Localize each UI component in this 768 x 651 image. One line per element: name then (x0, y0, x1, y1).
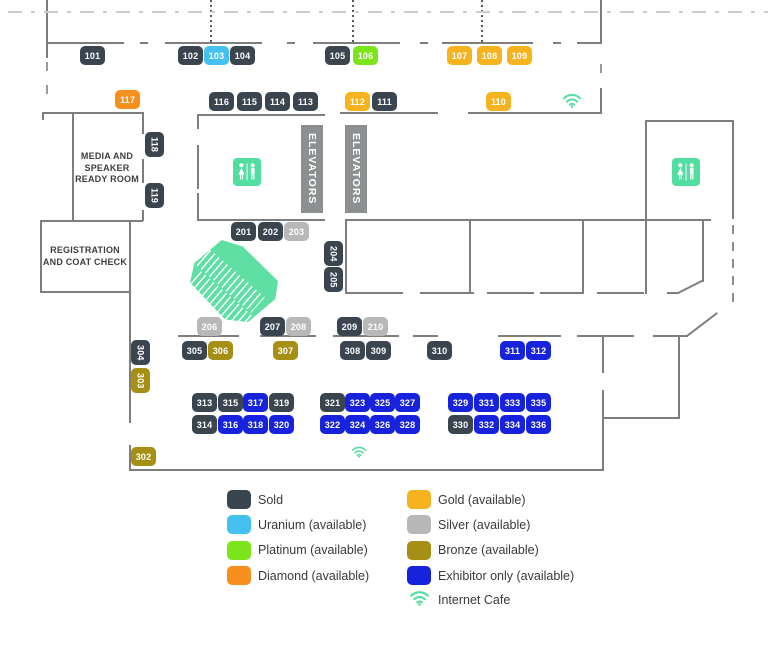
legend-item-uranium: Uranium (available) (227, 515, 366, 534)
wall-segment (197, 114, 325, 116)
wall-segment (602, 390, 604, 471)
wall-segment (481, 0, 483, 43)
booth-110[interactable]: 110 (486, 92, 511, 111)
booth-302[interactable]: 302 (131, 447, 156, 466)
booth-104[interactable]: 104 (230, 46, 255, 65)
booth-205[interactable]: 205 (324, 267, 343, 292)
booth-307[interactable]: 307 (273, 341, 298, 360)
wall-segment (540, 292, 583, 294)
legend-label-bronze: Bronze (available) (438, 543, 539, 557)
wall-segment (600, 88, 602, 114)
legend-swatch-exhibitor (407, 566, 431, 585)
booth-328[interactable]: 328 (395, 415, 420, 434)
wall-segment (197, 193, 199, 220)
legend-item-platinum: Platinum (available) (227, 541, 368, 560)
legend-item-gold: Gold (available) (407, 490, 526, 509)
legend-item-silver: Silver (available) (407, 515, 530, 534)
booth-208[interactable]: 208 (286, 317, 311, 336)
wall-segment (313, 42, 400, 44)
booth-316[interactable]: 316 (218, 415, 243, 434)
booth-308[interactable]: 308 (340, 341, 365, 360)
booth-327[interactable]: 327 (395, 393, 420, 412)
booth-112[interactable]: 112 (345, 92, 370, 111)
wall-segment (413, 335, 438, 337)
wall-segment (597, 292, 644, 294)
booth-319[interactable]: 319 (269, 393, 294, 412)
wall-segment (577, 42, 602, 44)
wall-segment (42, 112, 44, 120)
wall-segment (582, 219, 584, 294)
wall-segment (165, 42, 262, 44)
wall-segment (345, 219, 711, 221)
legend-swatch-platinum (227, 541, 251, 560)
wall-segment (42, 112, 143, 114)
legend-item-exhibitor: Exhibitor only (available) (407, 566, 574, 585)
wifi-icon (407, 589, 431, 611)
wall-segment (8, 11, 768, 13)
booth-313[interactable]: 313 (192, 393, 217, 412)
booth-210[interactable]: 210 (363, 317, 388, 336)
booth-202[interactable]: 202 (258, 222, 283, 241)
wall-segment (577, 335, 634, 337)
wall-segment (653, 335, 688, 337)
wall-segment (702, 219, 704, 282)
booth-321[interactable]: 321 (320, 393, 345, 412)
booth-115[interactable]: 115 (237, 92, 262, 111)
wall-segment (645, 120, 647, 294)
legend-label-silver: Silver (available) (438, 518, 530, 532)
legend-swatch-bronze (407, 541, 431, 560)
wall-segment (142, 210, 144, 221)
booth-117[interactable]: 117 (115, 90, 140, 109)
booth-330[interactable]: 330 (448, 415, 473, 434)
booth-209[interactable]: 209 (337, 317, 362, 336)
legend-item-internet-cafe: Internet Cafe (407, 589, 510, 611)
booth-324[interactable]: 324 (345, 415, 370, 434)
legend-item-diamond: Diamond (available) (227, 566, 369, 585)
booth-207[interactable]: 207 (260, 317, 285, 336)
booth-113[interactable]: 113 (293, 92, 318, 111)
booth-322[interactable]: 322 (320, 415, 345, 434)
wall-segment (142, 112, 144, 134)
wall-segment (498, 335, 561, 337)
wall-segment (420, 42, 428, 44)
booth-314[interactable]: 314 (192, 415, 217, 434)
wifi-icon (351, 445, 367, 463)
wifi-icon (562, 92, 582, 113)
wall-segment (352, 0, 354, 43)
legend-label-gold: Gold (available) (438, 493, 526, 507)
registration-coat-check-label: REGISTRATIONAND COAT CHECK (40, 245, 130, 268)
booth-305[interactable]: 305 (182, 341, 207, 360)
booth-320[interactable]: 320 (269, 415, 294, 434)
wall-segment (678, 335, 680, 419)
media-speaker-ready-room-label: MEDIA ANDSPEAKERREADY ROOM (64, 151, 150, 186)
wall-segment (345, 219, 347, 294)
wall-segment (40, 291, 131, 293)
legend-swatch-silver (407, 515, 431, 534)
wall-segment (46, 0, 48, 58)
wall-segment (600, 0, 602, 43)
booth-206[interactable]: 206 (197, 317, 222, 336)
legend-item-sold: Sold (227, 490, 283, 509)
booth-105[interactable]: 105 (325, 46, 350, 65)
booth-329[interactable]: 329 (448, 393, 473, 412)
booth-317[interactable]: 317 (243, 393, 268, 412)
wall-segment (345, 292, 403, 294)
wall-segment (46, 62, 48, 71)
wall-segment (46, 42, 124, 44)
booth-326[interactable]: 326 (370, 415, 395, 434)
booth-201[interactable]: 201 (231, 222, 256, 241)
wall-segment (732, 120, 734, 219)
legend-swatch-sold (227, 490, 251, 509)
booth-109[interactable]: 109 (507, 46, 532, 65)
wall-segment (340, 112, 438, 114)
wall-segment (678, 280, 703, 294)
booth-114[interactable]: 114 (265, 92, 290, 111)
legend-label-internet-cafe: Internet Cafe (438, 593, 510, 607)
wall-segment (469, 219, 471, 294)
expo-floor-plan: MEDIA ANDSPEAKERREADY ROOM REGISTRATIONA… (0, 0, 768, 651)
legend-swatch-gold (407, 490, 431, 509)
booth-119[interactable]: 119 (145, 183, 164, 208)
booth-303[interactable]: 303 (131, 368, 150, 393)
wall-segment (602, 417, 679, 419)
booth-108[interactable]: 108 (477, 46, 502, 65)
booth-315[interactable]: 315 (218, 393, 243, 412)
booth-111[interactable]: 111 (372, 92, 397, 111)
booth-312[interactable]: 312 (526, 341, 551, 360)
wall-segment (602, 337, 604, 373)
elevator-bank-left: ELEVATORS (301, 125, 323, 213)
booth-106[interactable]: 106 (353, 46, 378, 65)
legend-item-bronze: Bronze (available) (407, 541, 539, 560)
booth-101[interactable]: 101 (80, 46, 105, 65)
restroom-icon (233, 158, 261, 186)
legend-label-diamond: Diamond (available) (258, 569, 369, 583)
wall-segment (197, 219, 325, 221)
wall-segment (645, 120, 733, 122)
wall-segment (487, 292, 534, 294)
booth-325[interactable]: 325 (370, 393, 395, 412)
booth-204[interactable]: 204 (324, 241, 343, 266)
elevator-bank-right: ELEVATORS (345, 125, 367, 213)
booth-304[interactable]: 304 (131, 340, 150, 365)
wall-segment (40, 220, 143, 222)
booth-309[interactable]: 309 (366, 341, 391, 360)
wall-segment (420, 292, 474, 294)
wall-segment (732, 225, 734, 307)
legend-swatch-diamond (227, 566, 251, 585)
wall-segment (287, 42, 295, 44)
stairs (190, 240, 278, 322)
booth-311[interactable]: 311 (500, 341, 525, 360)
booth-333[interactable]: 333 (500, 393, 525, 412)
booth-118[interactable]: 118 (145, 132, 164, 157)
wall-segment (442, 42, 533, 44)
booth-332[interactable]: 332 (474, 415, 499, 434)
wall-segment (686, 312, 717, 337)
booth-323[interactable]: 323 (345, 393, 370, 412)
booth-331[interactable]: 331 (474, 393, 499, 412)
booth-116[interactable]: 116 (209, 92, 234, 111)
wall-segment (600, 64, 602, 73)
booth-310[interactable]: 310 (427, 341, 452, 360)
booth-102[interactable]: 102 (178, 46, 203, 65)
wall-segment (210, 0, 212, 43)
legend-label-platinum: Platinum (available) (258, 543, 368, 557)
booth-203[interactable]: 203 (284, 222, 309, 241)
booth-318[interactable]: 318 (243, 415, 268, 434)
wall-segment (46, 85, 48, 94)
wall-segment (553, 42, 561, 44)
booth-103[interactable]: 103 (204, 46, 229, 65)
legend-label-sold: Sold (258, 493, 283, 507)
wall-segment (197, 115, 199, 129)
legend-label-exhibitor: Exhibitor only (available) (438, 569, 574, 583)
booth-107[interactable]: 107 (447, 46, 472, 65)
wall-segment (129, 469, 602, 471)
wall-segment (140, 42, 148, 44)
legend-swatch-uranium (227, 515, 251, 534)
booth-336[interactable]: 336 (526, 415, 551, 434)
restroom-icon (672, 158, 700, 186)
booth-334[interactable]: 334 (500, 415, 525, 434)
legend-label-uranium: Uranium (available) (258, 518, 366, 532)
booth-306[interactable]: 306 (208, 341, 233, 360)
wall-segment (197, 145, 199, 189)
booth-335[interactable]: 335 (526, 393, 551, 412)
